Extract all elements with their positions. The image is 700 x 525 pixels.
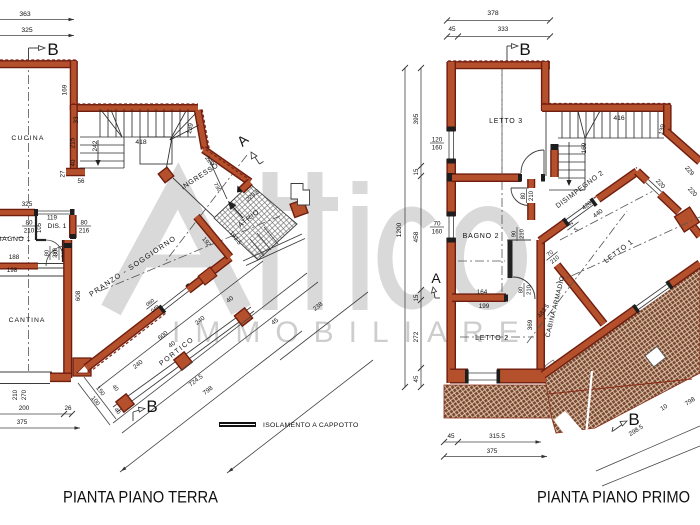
svg-text:PIANTA PIANO PRIMO: PIANTA PIANO PRIMO	[537, 488, 690, 507]
svg-text:B: B	[47, 40, 58, 59]
svg-text:216: 216	[79, 227, 90, 234]
svg-text:416: 416	[613, 115, 625, 122]
svg-text:80: 80	[54, 250, 60, 256]
svg-text:80: 80	[521, 192, 527, 199]
svg-text:LETTO 2: LETTO 2	[475, 335, 509, 342]
svg-text:119: 119	[47, 215, 58, 222]
svg-text:LETTO 3: LETTO 3	[489, 118, 523, 125]
svg-text:188: 188	[9, 254, 20, 261]
svg-text:272: 272	[413, 331, 420, 342]
svg-text:15: 15	[414, 168, 420, 175]
svg-text:45: 45	[448, 26, 456, 33]
svg-text:ISOLAMENTO A CAPPOTTO: ISOLAMENTO A CAPPOTTO	[263, 422, 359, 429]
svg-text:26: 26	[64, 405, 72, 412]
svg-text:1200: 1200	[396, 222, 403, 237]
svg-text:CANTINA: CANTINA	[9, 317, 46, 324]
svg-text:325: 325	[22, 201, 33, 208]
svg-text:160: 160	[432, 228, 443, 235]
svg-text:199: 199	[479, 303, 490, 310]
svg-text:B: B	[146, 397, 157, 416]
svg-text:169: 169	[581, 142, 588, 153]
svg-text:45: 45	[413, 375, 420, 382]
svg-text:333: 333	[498, 26, 509, 33]
svg-text:164: 164	[477, 289, 488, 296]
svg-text:315.5: 315.5	[489, 433, 505, 440]
svg-text:200: 200	[19, 405, 30, 412]
svg-text:BAGNO 2: BAGNO 2	[463, 233, 500, 240]
svg-text:105: 105	[37, 222, 43, 233]
svg-text:375: 375	[17, 419, 28, 426]
svg-text:210: 210	[526, 285, 532, 295]
svg-text:395: 395	[413, 113, 420, 124]
svg-text:DIS. 1: DIS. 1	[48, 223, 67, 230]
svg-text:45: 45	[447, 433, 455, 440]
svg-text:458: 458	[413, 231, 420, 242]
svg-text:418: 418	[135, 139, 147, 146]
svg-text:33: 33	[73, 116, 80, 124]
svg-text:80: 80	[80, 220, 88, 227]
svg-text:608: 608	[75, 290, 82, 301]
svg-text:210: 210	[12, 389, 19, 400]
svg-text:120: 120	[432, 137, 443, 144]
svg-text:242: 242	[92, 140, 99, 151]
svg-text:40: 40	[70, 159, 77, 166]
svg-text:198: 198	[7, 267, 18, 274]
svg-text:270: 270	[21, 389, 28, 400]
svg-text:80: 80	[25, 220, 33, 227]
svg-text:325: 325	[21, 27, 33, 34]
svg-text:IMMOBILIARE: IMMOBILIARE	[172, 316, 534, 349]
svg-text:90: 90	[512, 231, 518, 237]
svg-text:215: 215	[70, 137, 77, 148]
svg-text:A: A	[431, 270, 441, 286]
svg-text:210: 210	[519, 229, 525, 239]
svg-text:169: 169	[62, 84, 69, 95]
svg-text:B: B	[519, 40, 530, 59]
svg-text:378: 378	[487, 10, 499, 17]
svg-text:27: 27	[60, 170, 67, 177]
svg-text:375: 375	[487, 448, 498, 455]
svg-text:PIANTA PIANO TERRA: PIANTA PIANO TERRA	[63, 488, 219, 507]
svg-text:BAGNO 1: BAGNO 1	[0, 236, 31, 243]
svg-text:369: 369	[527, 319, 534, 330]
svg-text:363: 363	[19, 11, 31, 18]
svg-text:210: 210	[24, 227, 35, 234]
svg-text:80: 80	[45, 250, 51, 256]
svg-text:CUCINA: CUCINA	[11, 135, 44, 142]
svg-text:15: 15	[414, 294, 420, 301]
svg-text:80: 80	[519, 287, 525, 293]
svg-text:56: 56	[78, 178, 85, 185]
svg-text:210: 210	[529, 190, 535, 201]
svg-text:160: 160	[432, 144, 443, 151]
svg-text:B: B	[628, 410, 639, 429]
svg-text:70: 70	[433, 221, 441, 228]
